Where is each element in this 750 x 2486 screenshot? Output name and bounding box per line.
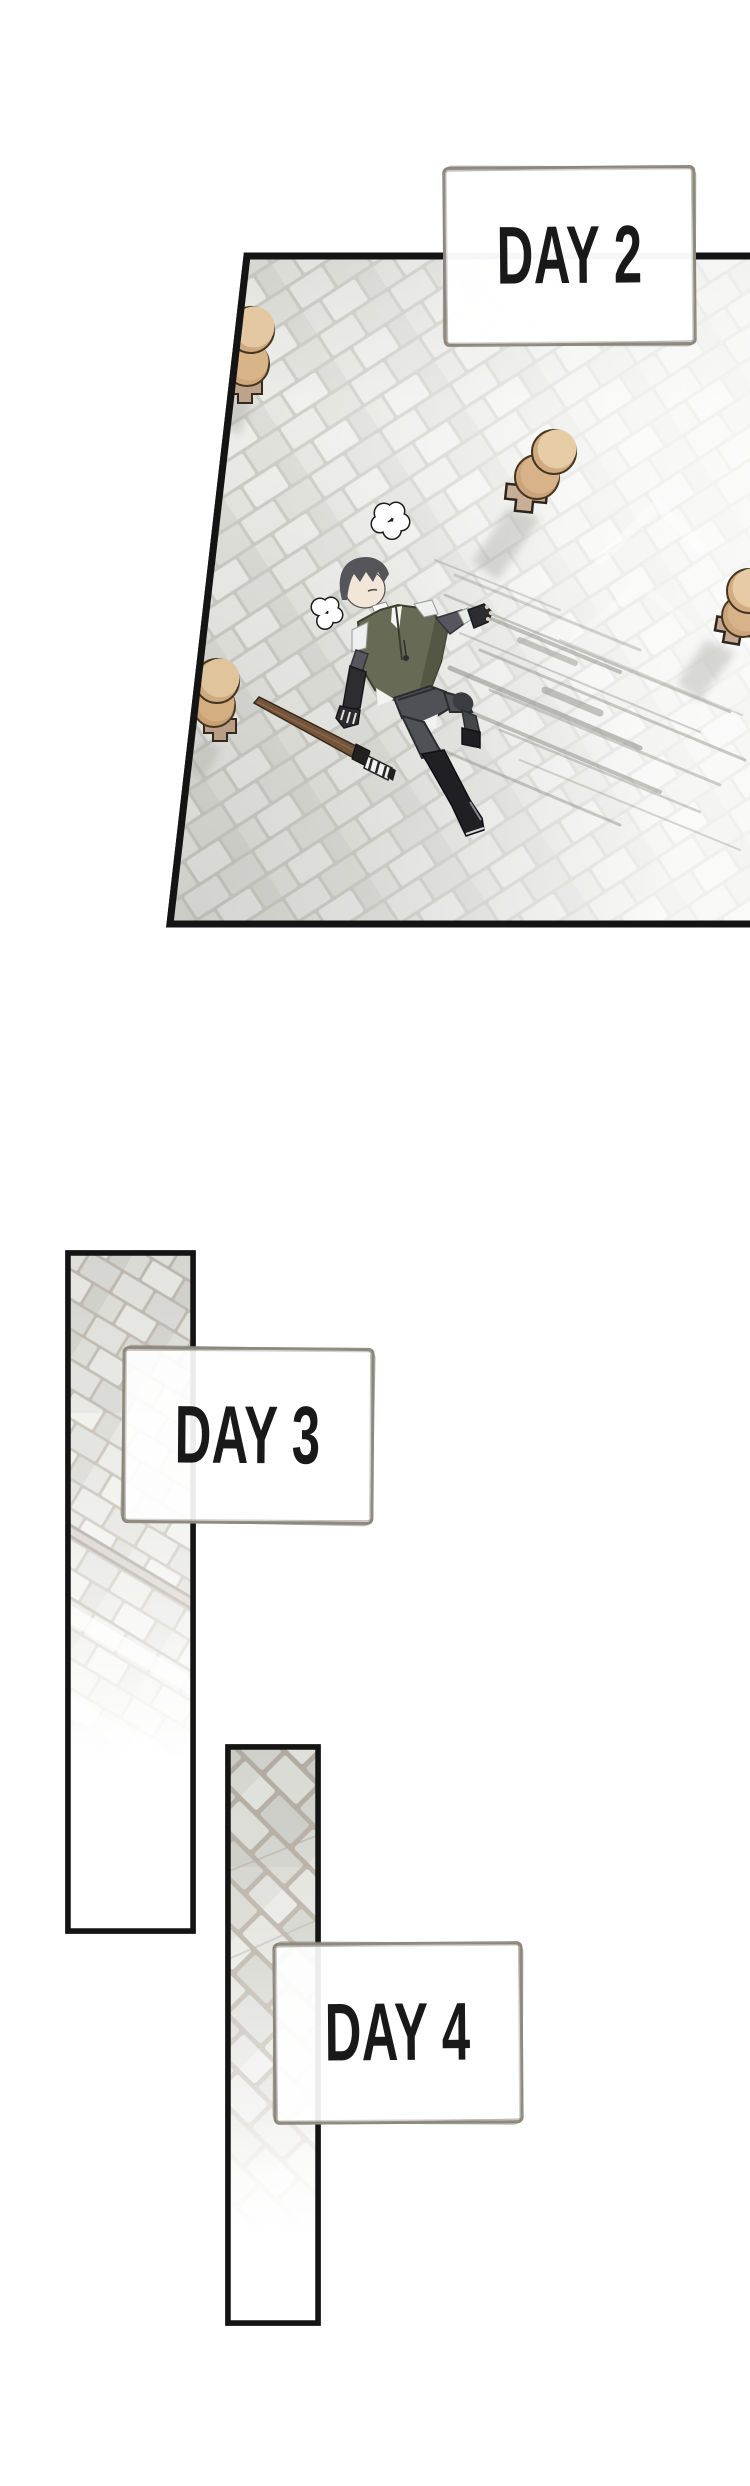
day-label-box-2: DAY 2 (442, 165, 697, 347)
day-label-text: DAY 2 (496, 214, 642, 297)
day-label-box-3: DAY 3 (121, 1346, 374, 1525)
day-label-text: DAY 4 (325, 1991, 471, 2074)
day-label-text: DAY 3 (175, 1394, 321, 1477)
webtoon-page: DAY 2 DAY 3 DAY 4 (0, 0, 750, 2486)
day-label-box-4: DAY 4 (272, 1941, 523, 2125)
